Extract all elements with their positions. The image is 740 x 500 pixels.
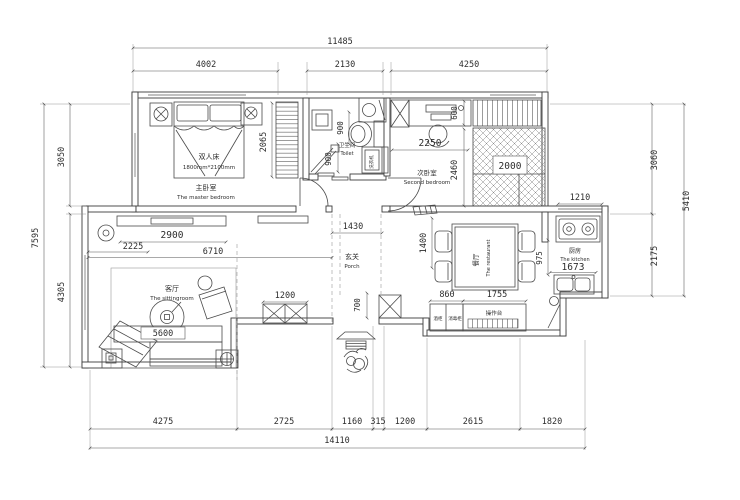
dining-room: 餐厅 The restaurant 1400 975 860 1755 酒柜 消… <box>419 218 548 331</box>
cabinet-dim: 860 <box>439 290 454 300</box>
living-col-dim: 1200 <box>275 291 295 301</box>
dim-bottom-1: 4275 <box>153 417 173 427</box>
sliding-door <box>318 173 348 180</box>
bathroom-label-zh: 卫生间 <box>339 141 356 149</box>
beam-dashed-lines <box>237 214 381 380</box>
wardrobe <box>473 100 541 126</box>
kitchen-sink <box>554 275 594 294</box>
floor-plan-canvas: 双人床 1800mm*2100mm 主卧室 The master bedroom… <box>0 0 740 500</box>
bathroom: 洗衣机 卫生间 Toilet 900 900 <box>311 98 388 180</box>
dim-left-total: 7595 <box>31 228 41 248</box>
bath-dim-2: 900 <box>324 152 333 166</box>
bathroom-label-en: Toilet <box>339 151 353 157</box>
side-cabinet <box>258 216 308 223</box>
dining-label-en: The restaurant <box>486 239 492 277</box>
counter-label: 操作台 <box>486 309 503 317</box>
cabinet-b-label: 消毒柜 <box>448 315 462 322</box>
wardrobe <box>276 102 298 178</box>
kitchen-door <box>548 297 560 329</box>
living-dim-a: 2225 <box>123 242 143 252</box>
second-bedroom: 2250 600 2460 次卧室 Second bedroom 2000 <box>388 100 545 211</box>
entry-decoration <box>337 332 375 372</box>
kitchen-window-dim: 1210 <box>570 193 590 203</box>
dim-bottom-4: 315 <box>370 417 385 427</box>
sideboard-cabinets: 酒柜 消毒柜 <box>430 304 463 331</box>
kitchen-label-zh: 厨房 <box>569 247 581 255</box>
washer-label: 洗衣机 <box>368 155 375 169</box>
hall-dim: 1430 <box>343 222 363 232</box>
dim-right-2: 2175 <box>650 246 660 266</box>
master-bedroom: 双人床 1800mm*2100mm 主卧室 The master bedroom… <box>150 102 328 206</box>
bed2-dim: 2000 <box>499 161 522 172</box>
sitting-room-label-zh: 客厅 <box>165 284 179 293</box>
porch-col-dim: 700 <box>353 298 362 312</box>
desk-depth-dim: 600 <box>450 106 459 120</box>
dining-label-zh: 餐厅 <box>471 253 480 267</box>
sofa: 5600 <box>99 321 222 367</box>
porch: 玄关 Porch 1430 700 <box>332 205 437 372</box>
column <box>391 100 409 127</box>
dim-top-2: 2130 <box>335 60 355 70</box>
dining-chairs <box>435 231 535 282</box>
wardrobe-dim: 2065 <box>259 132 269 152</box>
tv <box>151 218 193 224</box>
dim-left-2: 4305 <box>57 282 67 302</box>
basin-sink <box>359 98 386 122</box>
bed-size-label: 1800mm*2100mm <box>183 165 235 171</box>
plant-icon <box>98 225 114 241</box>
second-bedroom-label-en: Second bedroom <box>404 180 451 186</box>
second-bedroom-label-zh: 次卧室 <box>417 168 437 177</box>
dim-left-1: 3050 <box>57 147 67 167</box>
room-depth-dim: 2460 <box>450 160 460 180</box>
dims-bottom: 4275 2725 1160 315 1200 2615 1820 14110 <box>90 326 585 450</box>
living-dim-b: 6710 <box>203 247 223 257</box>
floor-plan-page: 双人床 1800mm*2100mm 主卧室 The master bedroom… <box>0 0 740 500</box>
dim-bottom-5: 1200 <box>395 417 415 427</box>
dim-bottom-3: 1160 <box>342 417 362 427</box>
sitting-room: 2900 2225 6710 客厅 The sittingroom 5600 <box>88 216 332 368</box>
dining-table: 餐厅 The restaurant <box>452 224 518 290</box>
kitchen-counter-dim: 1673 <box>562 262 585 273</box>
dining-depth-dim: 1400 <box>419 233 429 253</box>
porch-label-zh: 玄关 <box>345 252 359 261</box>
gas-stove <box>556 216 600 242</box>
side-table-round <box>198 276 212 290</box>
sitting-room-label-en: The sittingroom <box>149 296 193 302</box>
dim-right-1: 3060 <box>650 150 660 170</box>
porch-column <box>379 295 401 318</box>
tv-cabinet <box>117 216 226 226</box>
cabinet-a-label: 酒柜 <box>434 315 443 322</box>
master-bedroom-label-en: The master bedroom <box>176 195 235 201</box>
counter-dim: 1755 <box>487 290 507 300</box>
dim-bottom-total: 14110 <box>324 436 350 446</box>
kitchen-pass-dim: 975 <box>535 251 544 265</box>
master-bedroom-label-zh: 主卧室 <box>196 183 217 192</box>
bath-dim-1: 900 <box>336 121 345 135</box>
dim-top-1: 4002 <box>196 60 216 70</box>
plant-sketch <box>344 348 368 372</box>
water-heater <box>312 110 332 130</box>
dim-bottom-7: 1820 <box>542 417 562 427</box>
operation-counter: 操作台 <box>463 304 526 331</box>
sofa-dim: 5600 <box>153 329 173 339</box>
armchair <box>199 287 232 319</box>
kitchen: 1210 厨房 The kitchen 1673 <box>548 193 602 328</box>
dim-right-total: 5410 <box>682 191 692 211</box>
bed-2: 2000 <box>473 128 545 206</box>
dim-bottom-6: 2615 <box>463 417 483 427</box>
tv-wall-dim: 2900 <box>161 230 184 241</box>
desk <box>409 100 471 126</box>
dim-bottom-2: 2725 <box>274 417 294 427</box>
bed-type-label: 双人床 <box>199 152 220 161</box>
dims-top: 11485 4002 2130 4250 <box>133 37 547 95</box>
porch-label-en: Porch <box>344 264 360 270</box>
dim-top-3: 4250 <box>459 60 479 70</box>
desk-dim: 2250 <box>419 138 442 149</box>
dim-top-total: 11485 <box>327 37 353 47</box>
master-door <box>300 178 328 206</box>
